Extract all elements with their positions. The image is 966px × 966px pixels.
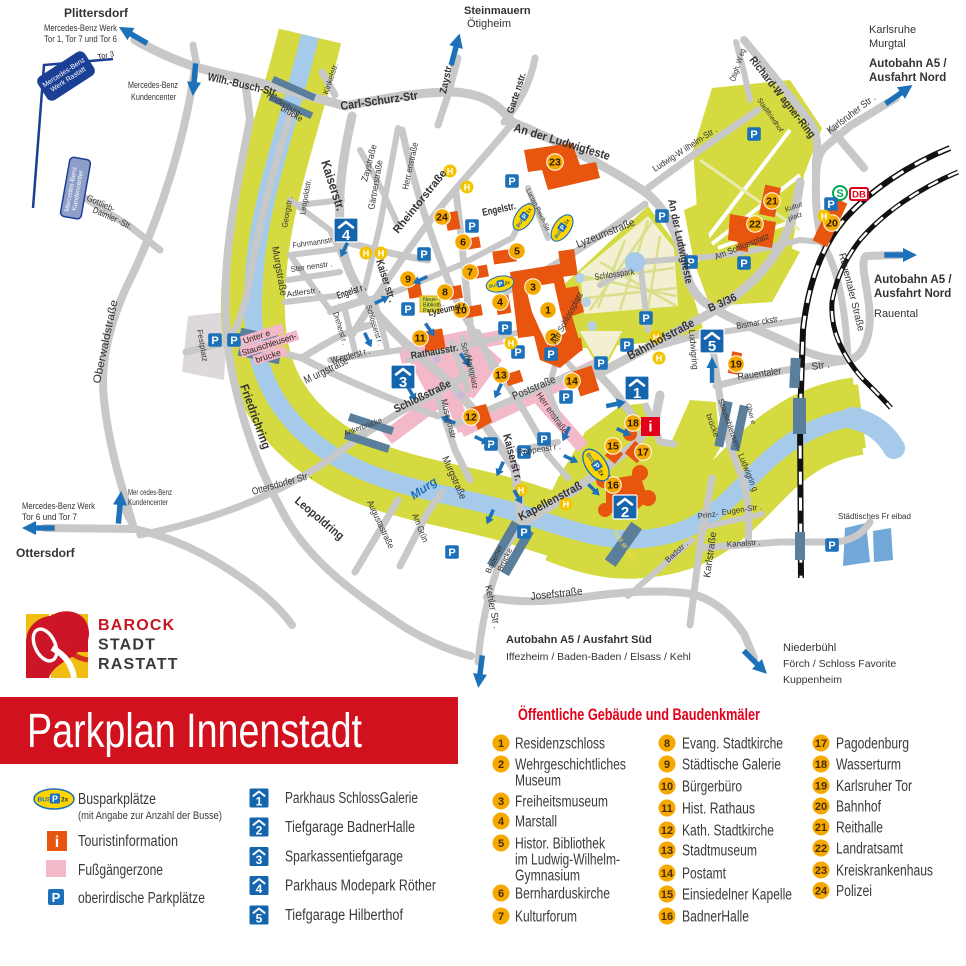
svg-text:Stadtmuseum: Stadtmuseum	[682, 843, 757, 860]
svg-text:Rappenst r .: Rappenst r .	[517, 442, 561, 457]
svg-text:Tiefgarage Hilberthof: Tiefgarage Hilberthof	[285, 907, 404, 924]
svg-text:Bernharduskirche: Bernharduskirche	[515, 886, 610, 903]
svg-text:Kundencenter: Kundencenter	[131, 92, 176, 103]
svg-text:Kulturforum: Kulturforum	[515, 909, 577, 926]
svg-text:Pagodenburg: Pagodenburg	[836, 736, 909, 753]
svg-text:Rauentaler: Rauentaler	[737, 366, 783, 383]
svg-text:Ausfahrt Nord: Ausfahrt Nord	[874, 288, 951, 300]
svg-text:17: 17	[637, 447, 649, 459]
svg-text:Ausfahrt Nord: Ausfahrt Nord	[869, 72, 946, 84]
svg-text:BadnerHalle: BadnerHalle	[682, 909, 749, 926]
svg-text:23: 23	[815, 865, 827, 877]
svg-text:Städtisches Fr eibad: Städtisches Fr eibad	[838, 512, 911, 521]
svg-text:3: 3	[256, 853, 263, 867]
svg-text:22: 22	[815, 843, 827, 855]
svg-text:Parkhaus SchlossGalerie: Parkhaus SchlossGalerie	[285, 790, 418, 807]
svg-text:3: 3	[498, 796, 504, 808]
svg-text:17: 17	[815, 738, 827, 750]
svg-text:Karlsruher Tor: Karlsruher Tor	[836, 778, 912, 795]
svg-text:Histor. Bibliothek: Histor. Bibliothek	[515, 836, 605, 853]
svg-text:16: 16	[607, 480, 619, 492]
svg-text:Öffentliche Gebäude und Bauden: Öffentliche Gebäude und Baudenkmäler	[518, 705, 760, 724]
svg-text:16: 16	[661, 911, 673, 923]
svg-text:Bürgerbüro: Bürgerbüro	[682, 779, 742, 796]
svg-text:Evang. Stadtkirche: Evang. Stadtkirche	[682, 736, 783, 753]
svg-text:Str .: Str .	[811, 360, 831, 373]
svg-text:Förch / Schloss Favorite: Förch / Schloss Favorite	[783, 658, 896, 670]
svg-text:Fußgängerzone: Fußgängerzone	[78, 862, 163, 879]
svg-text:2: 2	[621, 504, 629, 521]
svg-text:Parkhaus Modepark Röther: Parkhaus Modepark Röther	[285, 878, 436, 895]
svg-text:5: 5	[514, 246, 520, 258]
svg-text:Touristinformation: Touristinformation	[78, 833, 178, 850]
svg-text:Ötigheim: Ötigheim	[467, 18, 511, 30]
svg-text:15: 15	[607, 441, 619, 453]
svg-text:Gymnasium: Gymnasium	[515, 868, 580, 885]
svg-text:Mercedes-Benz: Mercedes-Benz	[128, 80, 178, 91]
svg-text:1: 1	[498, 738, 504, 750]
svg-text:Freiheitsmuseum: Freiheitsmuseum	[515, 794, 608, 811]
svg-text:Busparkplätze: Busparkplätze	[78, 791, 156, 808]
svg-text:14: 14	[661, 868, 674, 880]
svg-text:Landratsamt: Landratsamt	[836, 841, 904, 858]
svg-text:13: 13	[661, 845, 673, 857]
svg-text:12: 12	[661, 825, 673, 837]
svg-text:Ludwigring: Ludwigring	[687, 329, 700, 370]
svg-text:9: 9	[664, 759, 670, 771]
svg-text:11: 11	[414, 333, 425, 345]
svg-text:STADT: STADT	[98, 637, 156, 654]
svg-text:Reithalle: Reithalle	[836, 820, 883, 837]
svg-text:Wasserturm: Wasserturm	[836, 757, 901, 774]
svg-text:3: 3	[530, 282, 536, 294]
svg-text:19: 19	[815, 781, 827, 793]
svg-text:Mercedes-Benz Werk: Mercedes-Benz Werk	[22, 501, 95, 511]
svg-text:4: 4	[497, 297, 503, 309]
svg-text:6: 6	[460, 237, 466, 249]
svg-text:13: 13	[495, 370, 507, 382]
svg-text:5: 5	[498, 838, 504, 850]
svg-text:Postamt: Postamt	[682, 866, 727, 883]
svg-text:Parkplan Innenstadt: Parkplan Innenstadt	[27, 705, 362, 758]
svg-text:Niederbühl: Niederbühl	[783, 642, 836, 654]
svg-text:5: 5	[256, 912, 263, 926]
svg-text:RASTATT: RASTATT	[98, 656, 179, 673]
svg-text:24: 24	[436, 212, 448, 224]
svg-text:Marstall: Marstall	[515, 814, 557, 831]
svg-text:i: i	[55, 834, 59, 851]
svg-text:Karlsruhe: Karlsruhe	[869, 24, 916, 36]
svg-text:Autobahn A5 /: Autobahn A5 /	[874, 274, 952, 286]
svg-text:Ottersdorf: Ottersdorf	[16, 546, 76, 560]
svg-text:Autobahn A5 /: Autobahn A5 /	[869, 58, 947, 70]
svg-text:Hist. Rathaus: Hist. Rathaus	[682, 801, 755, 818]
svg-text:2: 2	[498, 759, 504, 771]
svg-text:Kundencenter: Kundencenter	[128, 498, 168, 507]
svg-text:P: P	[52, 890, 61, 905]
svg-text:Mer cedes-Benz: Mer cedes-Benz	[128, 488, 172, 497]
svg-text:Rauental: Rauental	[874, 308, 918, 320]
svg-text:Engelstr.: Engelstr.	[481, 200, 517, 219]
svg-text:18: 18	[627, 418, 639, 430]
svg-text:1: 1	[545, 305, 551, 317]
svg-text:Tiefgarage BadnerHalle: Tiefgarage BadnerHalle	[285, 819, 415, 836]
svg-text:im Ludwig-Wilhelm-: im Ludwig-Wilhelm-	[515, 852, 620, 869]
svg-text:18: 18	[815, 759, 827, 771]
svg-text:Wehrgeschichtliches: Wehrgeschichtliches	[515, 757, 626, 774]
svg-text:7: 7	[498, 911, 504, 923]
svg-text:oberirdische Parkplätze: oberirdische Parkplätze	[78, 890, 205, 907]
svg-text:3: 3	[399, 374, 407, 391]
svg-text:21: 21	[766, 196, 778, 208]
svg-text:Carl-Schurz-Str: Carl-Schurz-Str	[339, 88, 418, 113]
svg-text:8: 8	[442, 287, 448, 299]
svg-text:BAROCK: BAROCK	[98, 617, 175, 634]
svg-text:Autobahn A5 / Ausfahrt Süd: Autobahn A5 / Ausfahrt Süd	[506, 634, 652, 646]
svg-text:Tor 1, Tor 7 und Tor 6: Tor 1, Tor 7 und Tor 6	[44, 34, 117, 44]
svg-text:Murgtal: Murgtal	[869, 38, 906, 50]
svg-text:(mit Angabe zur Anzahl der Bus: (mit Angabe zur Anzahl der Busse)	[78, 810, 222, 822]
svg-text:BUS: BUS	[38, 797, 52, 804]
svg-text:11: 11	[661, 803, 673, 815]
svg-text:24: 24	[815, 886, 828, 898]
svg-text:22: 22	[749, 219, 761, 231]
svg-text:4: 4	[498, 816, 505, 828]
svg-text:Kuppenheim: Kuppenheim	[783, 674, 842, 686]
svg-text:21: 21	[815, 822, 827, 834]
svg-text:10: 10	[661, 781, 673, 793]
svg-text:Einsiedelner Kapelle: Einsiedelner Kapelle	[682, 887, 792, 904]
svg-text:Bahnhof: Bahnhof	[836, 799, 882, 816]
svg-text:4: 4	[256, 882, 263, 896]
svg-text:Kath. Stadtkirche: Kath. Stadtkirche	[682, 823, 774, 840]
svg-text:2x: 2x	[61, 797, 69, 804]
svg-text:20: 20	[815, 801, 827, 813]
svg-text:8: 8	[664, 738, 670, 750]
svg-text:15: 15	[661, 889, 673, 901]
svg-text:P: P	[52, 794, 58, 804]
svg-text:23: 23	[549, 157, 561, 169]
svg-text:Tor 6 und Tor 7: Tor 6 und Tor 7	[22, 512, 77, 522]
svg-text:Polizei: Polizei	[836, 883, 872, 900]
svg-text:Sparkassentiefgarage: Sparkassentiefgarage	[285, 849, 403, 866]
svg-text:Residenzschloss: Residenzschloss	[515, 736, 605, 753]
svg-text:9: 9	[405, 274, 411, 286]
svg-text:Museum: Museum	[515, 773, 561, 790]
svg-text:14: 14	[566, 376, 578, 388]
svg-text:7: 7	[467, 267, 473, 279]
svg-text:6: 6	[498, 888, 504, 900]
svg-text:4: 4	[342, 227, 351, 244]
svg-text:1: 1	[256, 795, 263, 809]
svg-text:Städtische Galerie: Städtische Galerie	[682, 757, 781, 774]
svg-text:5: 5	[708, 338, 716, 355]
svg-text:1: 1	[633, 385, 641, 402]
svg-text:Iffezheim / Baden-Baden / Elsa: Iffezheim / Baden-Baden / Elsass / Kehl	[506, 651, 691, 663]
svg-text:Kreiskrankenhaus: Kreiskrankenhaus	[836, 863, 933, 880]
svg-text:19: 19	[730, 359, 742, 371]
svg-text:i: i	[648, 419, 652, 436]
svg-text:2: 2	[256, 824, 263, 838]
svg-text:Mercedes-Benz Werk: Mercedes-Benz Werk	[44, 23, 117, 33]
svg-text:DB: DB	[852, 190, 866, 201]
svg-text:Steinmauern: Steinmauern	[464, 5, 531, 17]
svg-text:12: 12	[465, 412, 477, 424]
svg-text:Plittersdorf: Plittersdorf	[64, 6, 129, 20]
